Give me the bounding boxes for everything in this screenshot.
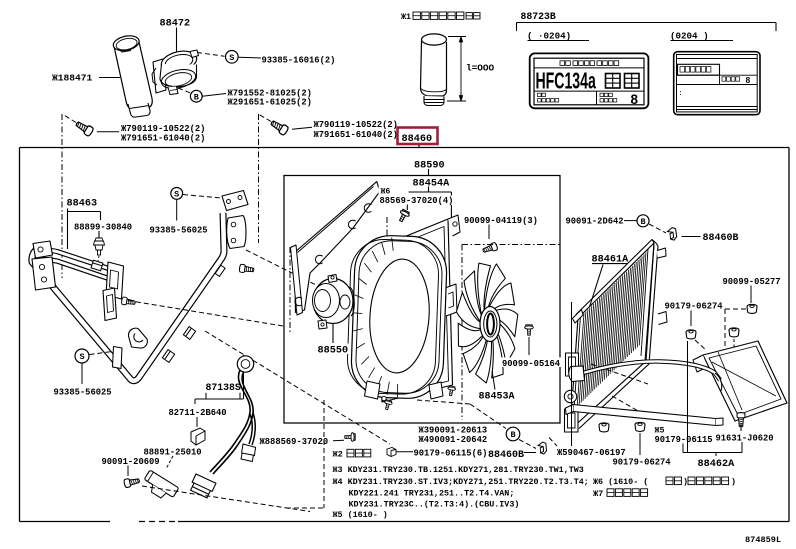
svg-text:Ж291651-61025(2): Ж291651-61025(2) [228,98,312,108]
svg-text:91631-J0620: 91631-J0620 [716,434,774,444]
svg-text:): ) [683,477,688,487]
svg-text:88550: 88550 [318,346,349,357]
svg-text:(0204 ): (0204 ) [670,31,709,42]
svg-text:88472: 88472 [160,19,191,30]
svg-text:93385-56025: 93385-56025 [150,226,208,236]
svg-text:HFC134a: HFC134a [536,68,596,95]
svg-text:90179-06115: 90179-06115 [655,435,713,445]
svg-text:Ж4 KDY231.TRY230.ST.IV3;KDY271: Ж4 KDY231.TRY230.ST.IV3;KDY271,251.TRY22… [333,477,589,487]
svg-text:l=OOO: l=OOO [466,63,495,74]
svg-text:874859L: 874859L [745,535,781,545]
svg-text:B: B [640,217,645,227]
svg-text:88590: 88590 [414,161,445,172]
svg-text:B: B [194,92,199,102]
svg-text:8: 8 [631,92,639,107]
svg-text:): ) [731,477,736,487]
svg-text:Ж188471: Ж188471 [52,73,93,84]
svg-text:88460: 88460 [402,134,433,145]
svg-text:88899-30840: 88899-30840 [74,222,132,232]
svg-text:88723B: 88723B [521,11,556,22]
svg-text:90179-06274: 90179-06274 [665,302,724,312]
svg-text:90099-05277: 90099-05277 [723,277,781,287]
svg-text:88454A: 88454A [413,178,451,189]
svg-text:87138S: 87138S [206,382,241,393]
svg-text:88460B: 88460B [703,233,739,244]
svg-text:( ·0204): ( ·0204) [527,31,571,42]
svg-text:S: S [174,190,179,200]
svg-text:KDY231.TRY23C..(T2.T3:4).(CBU.: KDY231.TRY23C..(T2.T3:4).(CBU.IV3) [349,499,520,509]
svg-text:88891-25010: 88891-25010 [144,447,202,457]
svg-text:Ж5 (1610- ): Ж5 (1610- ) [333,510,388,520]
svg-text:88453A: 88453A [479,392,515,403]
svg-text:Ж790119-10522(2): Ж790119-10522(2) [314,120,398,130]
svg-text:93385-16016(2): 93385-16016(2) [262,56,336,66]
svg-text:8: 8 [746,75,751,85]
svg-text:Ж791651-61040(2): Ж791651-61040(2) [314,130,398,140]
svg-text:Ж3 KDY231.TRY230.TB.1251.KDY27: Ж3 KDY231.TRY230.TB.1251.KDY271,281.TRY2… [333,465,584,475]
svg-text:93385-56025: 93385-56025 [54,387,112,397]
svg-text:88463: 88463 [67,199,98,210]
svg-text::: : [679,90,683,98]
svg-text:90091-20609: 90091-20609 [102,457,160,467]
svg-text:90179-06274: 90179-06274 [613,458,672,468]
svg-text:88460B: 88460B [488,450,524,461]
svg-text:Ж6 (1610- (: Ж6 (1610- ( [593,477,648,487]
svg-text:90179-06115(6): 90179-06115(6) [414,449,488,459]
svg-text:KDY221.241 TRY231,251..T2.T4.V: KDY221.241 TRY231,251..T2.T4.VAN; [349,488,515,498]
svg-text:Ж888569-37020: Ж888569-37020 [260,437,329,447]
svg-text:Ж490091-20642: Ж490091-20642 [419,435,488,445]
svg-text:88462A: 88462A [698,459,736,470]
svg-text:88569-37020(4): 88569-37020(4) [380,196,454,206]
svg-text:Ж791651-61040(2): Ж791651-61040(2) [121,134,205,144]
svg-text:S: S [229,53,234,63]
svg-text:90099-05164: 90099-05164 [502,359,561,369]
svg-text:90099-04119(3): 90099-04119(3) [464,216,538,226]
svg-text:82711-2B640: 82711-2B640 [169,408,227,418]
svg-text:S: S [79,352,84,362]
svg-text:Ж2: Ж2 [333,450,343,460]
svg-text:Ж7: Ж7 [593,489,603,499]
svg-text:90091-2D642: 90091-2D642 [566,216,624,226]
svg-text:Ж1: Ж1 [401,12,411,22]
svg-text:B: B [510,430,515,440]
